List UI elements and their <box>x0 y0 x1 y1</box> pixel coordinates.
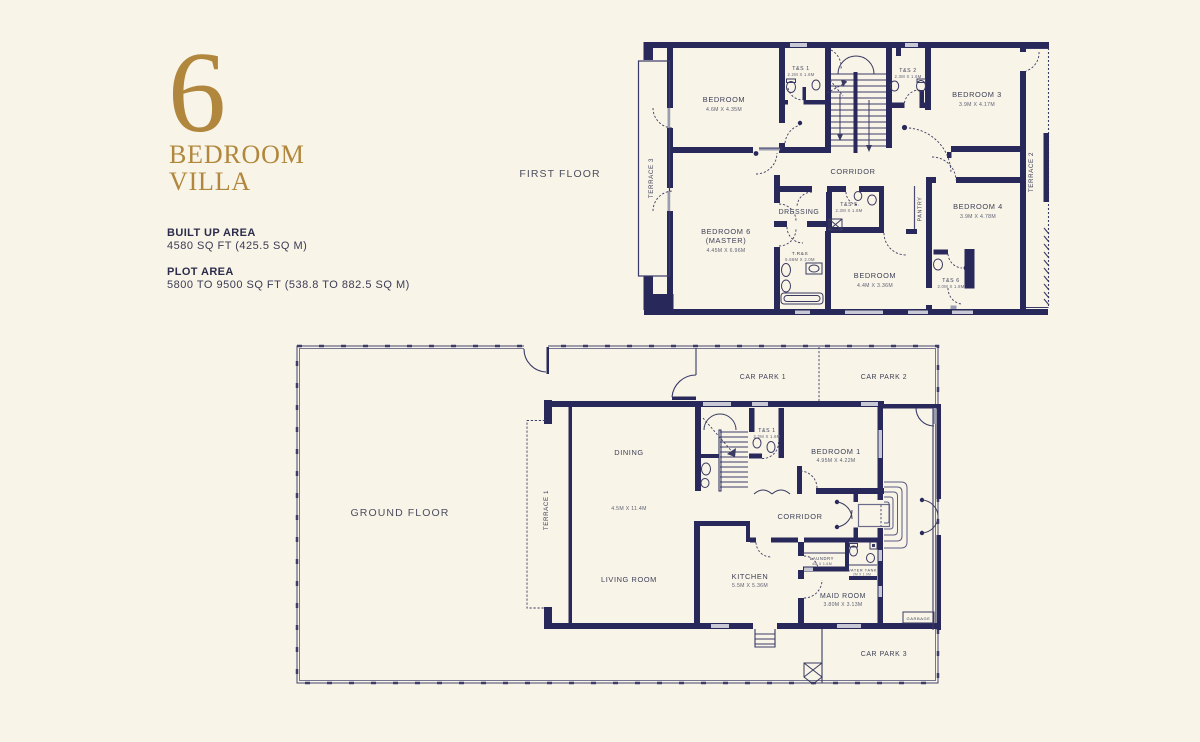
svg-text:5800 TO 9500 SQ FT (538.8 TO 8: 5800 TO 9500 SQ FT (538.8 TO 882.5 SQ M) <box>167 279 410 291</box>
svg-text:BEDROOM 3: BEDROOM 3 <box>952 90 1002 99</box>
svg-text:5.5M X 5.36M: 5.5M X 5.36M <box>732 583 768 589</box>
svg-text:BEDROOM 1: BEDROOM 1 <box>811 447 861 456</box>
svg-text:4.4M X 3.36M: 4.4M X 3.36M <box>857 283 893 289</box>
svg-text:3.9M X 4.78M: 3.9M X 4.78M <box>960 214 996 220</box>
svg-text:BEDROOM: BEDROOM <box>854 271 896 280</box>
svg-text:5.66M X 2.0M: 5.66M X 2.0M <box>785 257 815 262</box>
svg-text:3.9M X 4.17M: 3.9M X 4.17M <box>959 102 995 108</box>
svg-text:4580 SQ FT (425.5 SQ M): 4580 SQ FT (425.5 SQ M) <box>167 240 307 252</box>
svg-text:DINING: DINING <box>614 448 643 457</box>
svg-text:CAR PARK 2: CAR PARK 2 <box>861 374 907 381</box>
svg-text:CORRIDOR: CORRIDOR <box>830 167 875 176</box>
svg-text:2.3M X 1.6M: 2.3M X 1.6M <box>894 74 921 79</box>
svg-text:4.5M X 11.4M: 4.5M X 11.4M <box>611 506 647 512</box>
svg-text:BEDROOM: BEDROOM <box>703 95 745 104</box>
svg-text:PLOT AREA: PLOT AREA <box>167 266 234 278</box>
svg-text:TERRACE 2: TERRACE 2 <box>1028 152 1035 192</box>
svg-text:DRESSING: DRESSING <box>779 209 820 216</box>
svg-text:2.0M X 1.8M: 2.0M X 1.8M <box>937 284 964 289</box>
svg-text:4.45M X 6.96M: 4.45M X 6.96M <box>706 248 745 254</box>
svg-text:TERRACE 3: TERRACE 3 <box>648 158 655 198</box>
svg-text:4.6M X 4.35M: 4.6M X 4.35M <box>706 107 742 113</box>
svg-text:FIRST FLOOR: FIRST FLOOR <box>519 168 600 180</box>
svg-text:6: 6 <box>168 29 226 157</box>
svg-text:GROUND FLOOR: GROUND FLOOR <box>351 507 450 519</box>
svg-text:BEDROOM 4: BEDROOM 4 <box>953 202 1003 211</box>
svg-text:BEDROOM: BEDROOM <box>169 140 305 169</box>
svg-text:CORRIDOR: CORRIDOR <box>777 512 822 521</box>
svg-text:LAUNDRY: LAUNDRY <box>810 556 834 561</box>
svg-text:4.95M X 4.22M: 4.95M X 4.22M <box>816 458 855 464</box>
svg-text:LIVING ROOM: LIVING ROOM <box>601 575 657 584</box>
svg-text:CAR PARK 3: CAR PARK 3 <box>861 651 907 658</box>
svg-text:2.2M X 1.6M: 2.2M X 1.6M <box>787 72 814 77</box>
svg-text:GARBAGE: GARBAGE <box>907 616 931 621</box>
svg-text:2.3M X 1.8M: 2.3M X 1.8M <box>835 208 862 213</box>
svg-text:MAID ROOM: MAID ROOM <box>820 593 866 600</box>
svg-text:VILLA: VILLA <box>169 167 251 196</box>
svg-text:(MASTER): (MASTER) <box>706 236 747 245</box>
svg-text:KITCHEN: KITCHEN <box>732 572 769 581</box>
svg-text:CAR PARK 1: CAR PARK 1 <box>740 374 786 381</box>
svg-text:TERRACE 1: TERRACE 1 <box>543 490 550 530</box>
svg-text:BUILT UP AREA: BUILT UP AREA <box>167 227 256 239</box>
svg-text:2M X 1.0M: 2M X 1.0M <box>853 572 871 576</box>
svg-text:PANTRY: PANTRY <box>918 197 924 222</box>
svg-text:BEDROOM 6: BEDROOM 6 <box>701 227 751 236</box>
svg-text:3.80M X 3.13M: 3.80M X 3.13M <box>823 602 862 608</box>
svg-text:4M X 1.6M: 4M X 1.6M <box>812 562 832 566</box>
